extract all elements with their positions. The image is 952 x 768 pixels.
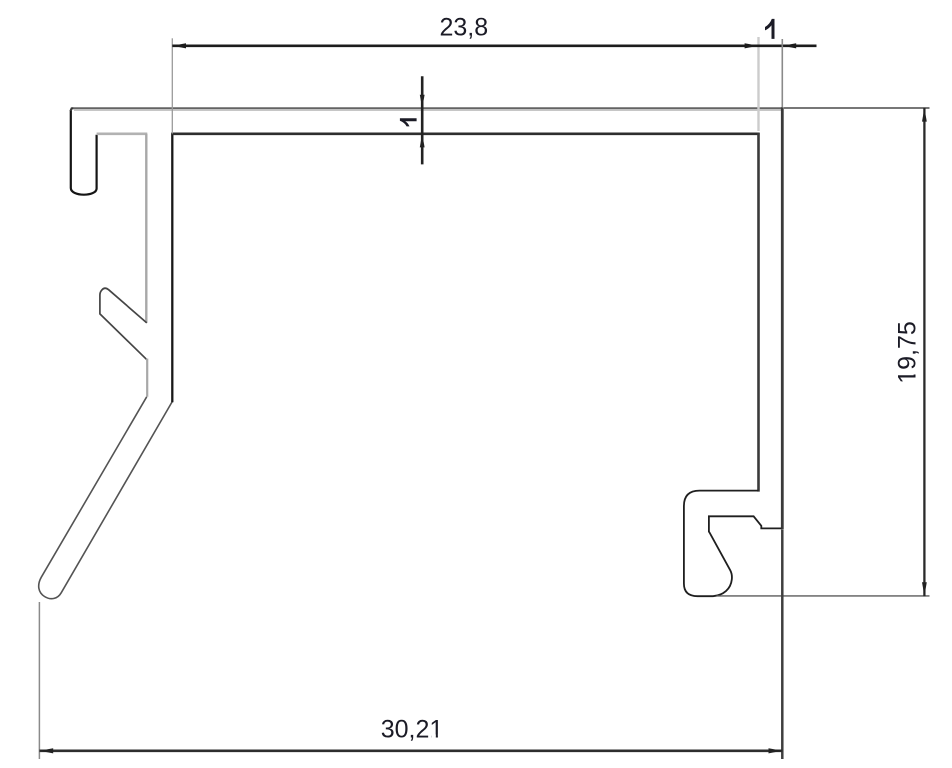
svg-text:23,8: 23,8 [439,14,488,42]
svg-text:30,21: 30,21 [381,715,444,743]
